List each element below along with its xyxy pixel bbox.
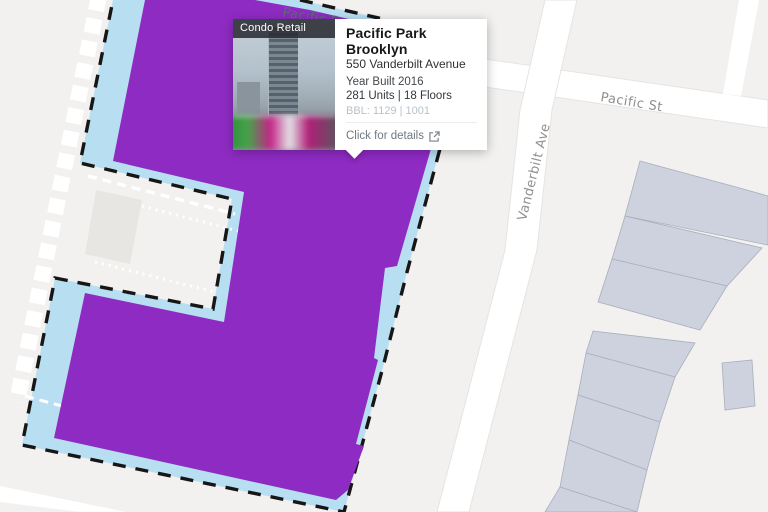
popup-units-floors: 281 Units | 18 Floors [346,89,477,104]
property-thumbnail: Condo Retail [233,19,335,150]
popup-bbl: BBL: 1129 | 1001 [346,104,477,118]
popup-address: 550 Vanderbilt Avenue [346,57,477,72]
category-badge: Condo Retail [233,19,335,38]
popup-cta-label: Click for details [346,129,424,143]
thumbnail-tower [268,27,299,121]
popup-title: Pacific Park Brooklyn [346,25,477,57]
popup-info: Pacific Park Brooklyn 550 Vanderbilt Ave… [335,19,487,150]
external-link-icon [429,131,440,142]
popup-cta[interactable]: Click for details [346,122,477,143]
thumbnail-street-blur [233,116,335,150]
building-footprint[interactable] [722,360,755,410]
map-app-window: Pacific St Pacific St Vanderbilt Ave Con… [0,0,768,512]
popup-year-built: Year Built 2016 [346,75,477,89]
property-popup: Condo Retail Pacific Park Brooklyn 550 V… [233,19,487,150]
